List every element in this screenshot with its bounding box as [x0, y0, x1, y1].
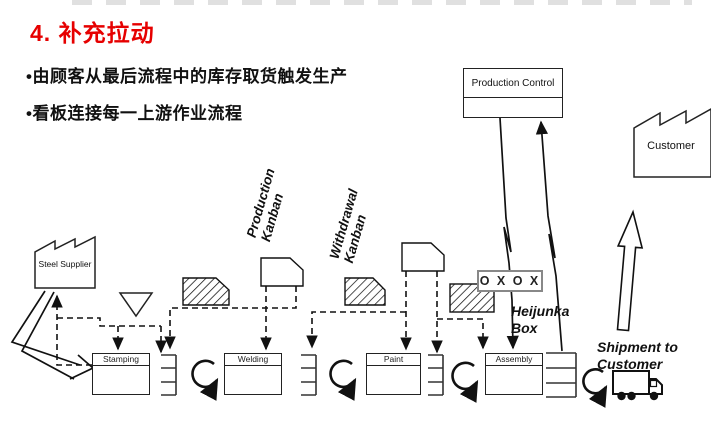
process-box-stamping: Stamping [92, 353, 150, 395]
supermarket-icon-2 [301, 355, 316, 395]
shipment-to-customer-label: Shipment to Customer [597, 339, 678, 372]
production-control-box: Production Control [463, 68, 563, 118]
supermarket-icon-4 [546, 353, 576, 397]
process-label: Paint [367, 354, 420, 366]
process-box-welding: Welding [224, 353, 282, 395]
truck-icon [613, 371, 662, 400]
process-box-assembly: Assembly [485, 353, 543, 395]
production-control-label: Production Control [464, 69, 562, 98]
pull-loop-arrow-1 [193, 361, 217, 387]
inventory-triangle-icon [120, 293, 152, 316]
process-label: Stamping [93, 354, 149, 366]
process-label: Assembly [486, 354, 542, 366]
kanban-card-hatched-2 [345, 278, 385, 305]
supermarket-icon-1 [161, 355, 176, 395]
pull-loop-arrow-4 [583, 369, 606, 393]
slide: 4. 补充拉动 •由顾客从最后流程中的库存取货触发生产 •看板连接每一上游作业流… [0, 0, 711, 434]
process-label: Welding [225, 354, 281, 366]
steel-supplier-label: Steel Supplier [35, 259, 95, 269]
shipment-up-arrow-icon [618, 212, 643, 331]
kanban-card-hatched-1 [183, 278, 229, 305]
customer-label: Customer [638, 140, 704, 152]
pull-loop-arrow-2 [331, 361, 355, 387]
supermarket-icon-3 [428, 355, 443, 395]
process-box-paint: Paint [366, 353, 421, 395]
heijunka-box-label: Heijunka Box [511, 303, 569, 336]
heijunka-box: O X O X [477, 270, 543, 292]
kanban-card-white-1 [261, 258, 303, 286]
kanban-card-white-2 [402, 243, 444, 271]
pull-loop-arrow-3 [453, 363, 477, 389]
